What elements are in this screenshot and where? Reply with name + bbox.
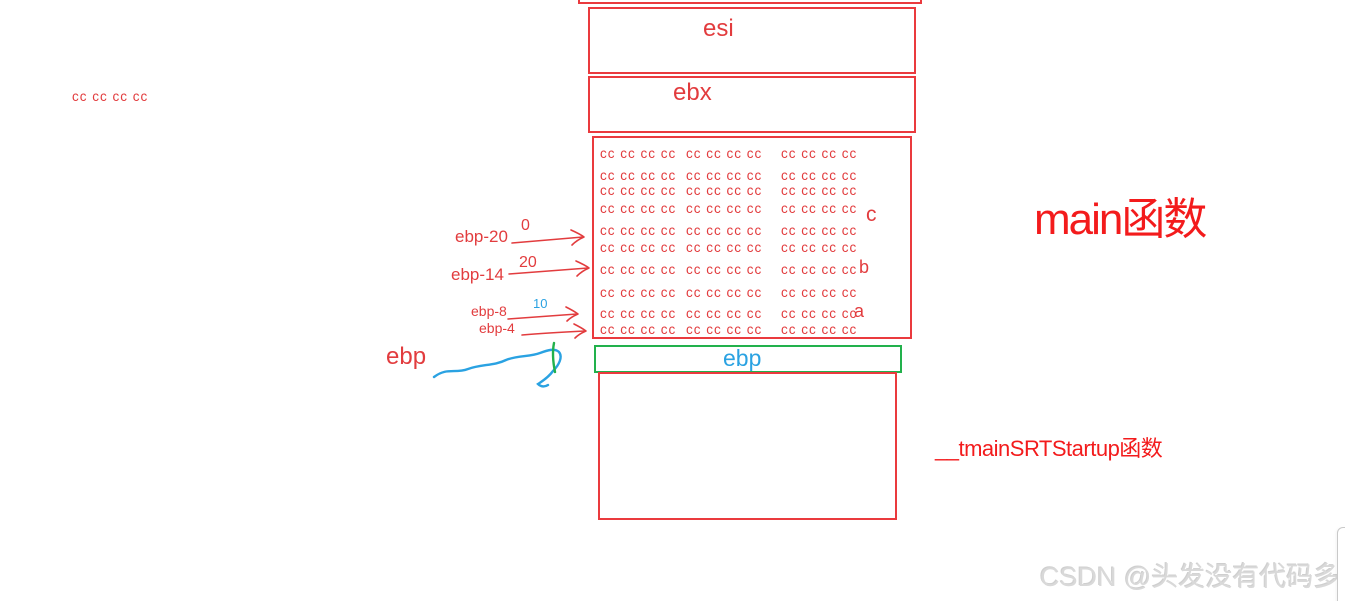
ebp-14-value: 20 xyxy=(519,255,537,271)
cc-cell: cc cc cc cc xyxy=(781,224,857,238)
ebp-20-label: ebp-20 xyxy=(455,228,508,245)
floating-cc-text: cc cc cc cc xyxy=(72,90,148,104)
startup-function-annotation: __tmainSRTStartup函数 xyxy=(935,438,1162,460)
cc-cell: cc cc cc cc xyxy=(686,286,762,300)
var-label-c: c xyxy=(866,204,877,225)
cc-cell: cc cc cc cc xyxy=(600,323,676,337)
cc-cell: cc cc cc cc xyxy=(600,307,676,321)
cc-cell: cc cc cc cc xyxy=(686,224,762,238)
ebp-hand-drawn-arrow xyxy=(434,350,561,387)
ebp8-arrow xyxy=(508,314,577,319)
ebp20-arrow xyxy=(512,237,583,243)
cc-cell: cc cc cc cc xyxy=(600,241,676,255)
ebp-8-label: ebp-8 xyxy=(471,304,507,318)
ebp4-arrow xyxy=(522,331,585,335)
cc-cell: cc cc cc cc xyxy=(600,202,676,216)
cc-cell: cc cc cc cc xyxy=(781,147,857,161)
ebp-pointer-label: ebp xyxy=(386,345,426,369)
cc-cell: cc cc cc cc xyxy=(781,286,857,300)
ebx-register-box xyxy=(588,76,916,133)
cc-cell: cc cc cc cc xyxy=(600,147,676,161)
cc-cell: cc cc cc cc xyxy=(686,323,762,337)
esi-register-box xyxy=(588,7,916,74)
main-function-annotation: main函数 xyxy=(1034,198,1205,242)
cc-cell: cc cc cc cc xyxy=(781,169,857,183)
cc-cell: cc cc cc cc xyxy=(781,241,857,255)
cutoff-stack-box xyxy=(578,0,922,4)
cc-cell: cc cc cc cc xyxy=(781,307,857,321)
ebp20-arrowhead-icon xyxy=(571,230,584,245)
esi-label: esi xyxy=(703,17,734,41)
floating-side-panel[interactable] xyxy=(1337,527,1345,601)
cc-cell: cc cc cc cc xyxy=(781,263,857,277)
cc-cell: cc cc cc cc xyxy=(686,169,762,183)
ebp-slot-label: ebp xyxy=(723,347,761,370)
green-tick-mark xyxy=(553,343,555,372)
cc-cell: cc cc cc cc xyxy=(686,263,762,277)
ebp4-arrowhead-icon xyxy=(574,324,586,338)
cc-cell: cc cc cc cc xyxy=(686,241,762,255)
cc-cell: cc cc cc cc xyxy=(781,202,857,216)
ebp14-arrowhead-icon xyxy=(576,261,589,276)
cc-cell: cc cc cc cc xyxy=(686,307,762,321)
cc-cell: cc cc cc cc xyxy=(686,202,762,216)
var-label-b: b xyxy=(859,258,869,276)
cc-cell: cc cc cc cc xyxy=(600,286,676,300)
var-label-a: a xyxy=(854,302,864,320)
csdn-watermark: CSDN @头发没有代码多 xyxy=(1040,564,1340,591)
cc-cell: cc cc cc cc xyxy=(600,224,676,238)
cc-cell: cc cc cc cc xyxy=(600,184,676,198)
stack-diagram-canvas: esi ebx ebp cc cc cc cc cc cc cc cccc cc… xyxy=(0,0,1345,601)
cc-cell: cc cc cc cc xyxy=(686,147,762,161)
ebp-8-value: 10 xyxy=(533,297,547,310)
cc-cell: cc cc cc cc xyxy=(600,263,676,277)
ebp8-arrowhead-icon xyxy=(566,307,578,321)
cc-cell: cc cc cc cc xyxy=(781,184,857,198)
ebp-20-value: 0 xyxy=(521,218,530,234)
ebp-4-label: ebp-4 xyxy=(479,321,515,335)
ebp-14-label: ebp-14 xyxy=(451,266,504,283)
cc-cell: cc cc cc cc xyxy=(781,323,857,337)
cc-cell: cc cc cc cc xyxy=(600,169,676,183)
ebx-label: ebx xyxy=(673,81,712,105)
cc-cell: cc cc cc cc xyxy=(686,184,762,198)
startup-frame-box xyxy=(598,372,897,520)
